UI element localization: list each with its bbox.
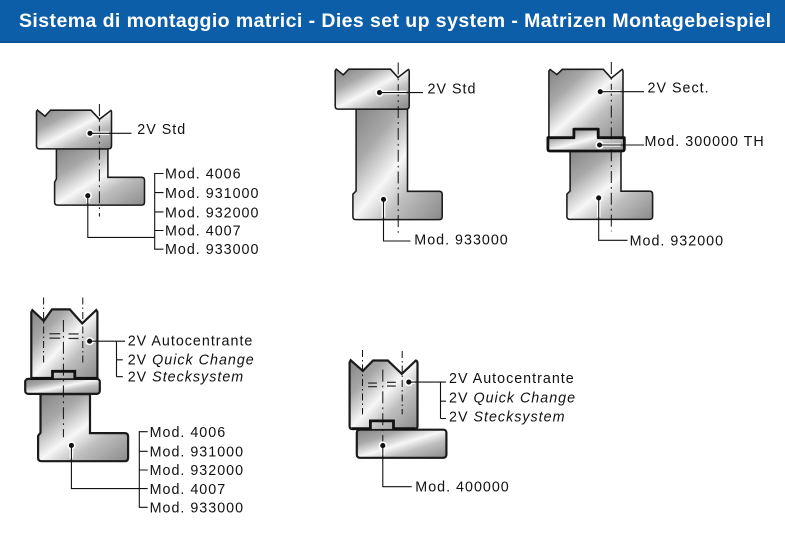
svg-text:2V Stecksystem: 2V Stecksystem (449, 409, 566, 425)
svg-text:2V Quick Change: 2V Quick Change (128, 353, 255, 369)
svg-text:Mod. 4006: Mod. 4006 (165, 167, 242, 183)
svg-text:2V Stecksystem: 2V Stecksystem (128, 370, 245, 386)
svg-text:Mod. 4007: Mod. 4007 (150, 482, 227, 498)
svg-text:Mod. 932000: Mod. 932000 (630, 233, 724, 249)
svg-text:Mod. 932000: Mod. 932000 (165, 205, 259, 221)
svg-text:Mod. 933000: Mod. 933000 (414, 232, 508, 248)
svg-text:2V Sect.: 2V Sect. (648, 81, 710, 97)
svg-text:Mod. 933000: Mod. 933000 (165, 242, 259, 258)
svg-text:2V Std: 2V Std (137, 122, 186, 138)
svg-text:2V Autocentrante: 2V Autocentrante (128, 334, 254, 350)
svg-text:2V Std: 2V Std (428, 82, 477, 98)
svg-text:Mod. 400000: Mod. 400000 (415, 480, 509, 496)
svg-text:Mod. 933000: Mod. 933000 (150, 501, 244, 517)
svg-text:2V Quick Change: 2V Quick Change (449, 390, 576, 406)
svg-text:Mod. 931000: Mod. 931000 (150, 445, 244, 461)
svg-text:Mod. 4006: Mod. 4006 (150, 425, 227, 441)
svg-text:Mod. 4007: Mod. 4007 (165, 224, 242, 240)
svg-text:Mod. 931000: Mod. 931000 (165, 186, 259, 202)
svg-text:Sistema di montaggio matrici -: Sistema di montaggio matrici - Dies set … (19, 10, 772, 32)
svg-text:Mod. 932000: Mod. 932000 (150, 463, 244, 479)
svg-text:2V Autocentrante: 2V Autocentrante (449, 371, 575, 387)
svg-text:Mod. 300000 TH: Mod. 300000 TH (645, 134, 765, 150)
